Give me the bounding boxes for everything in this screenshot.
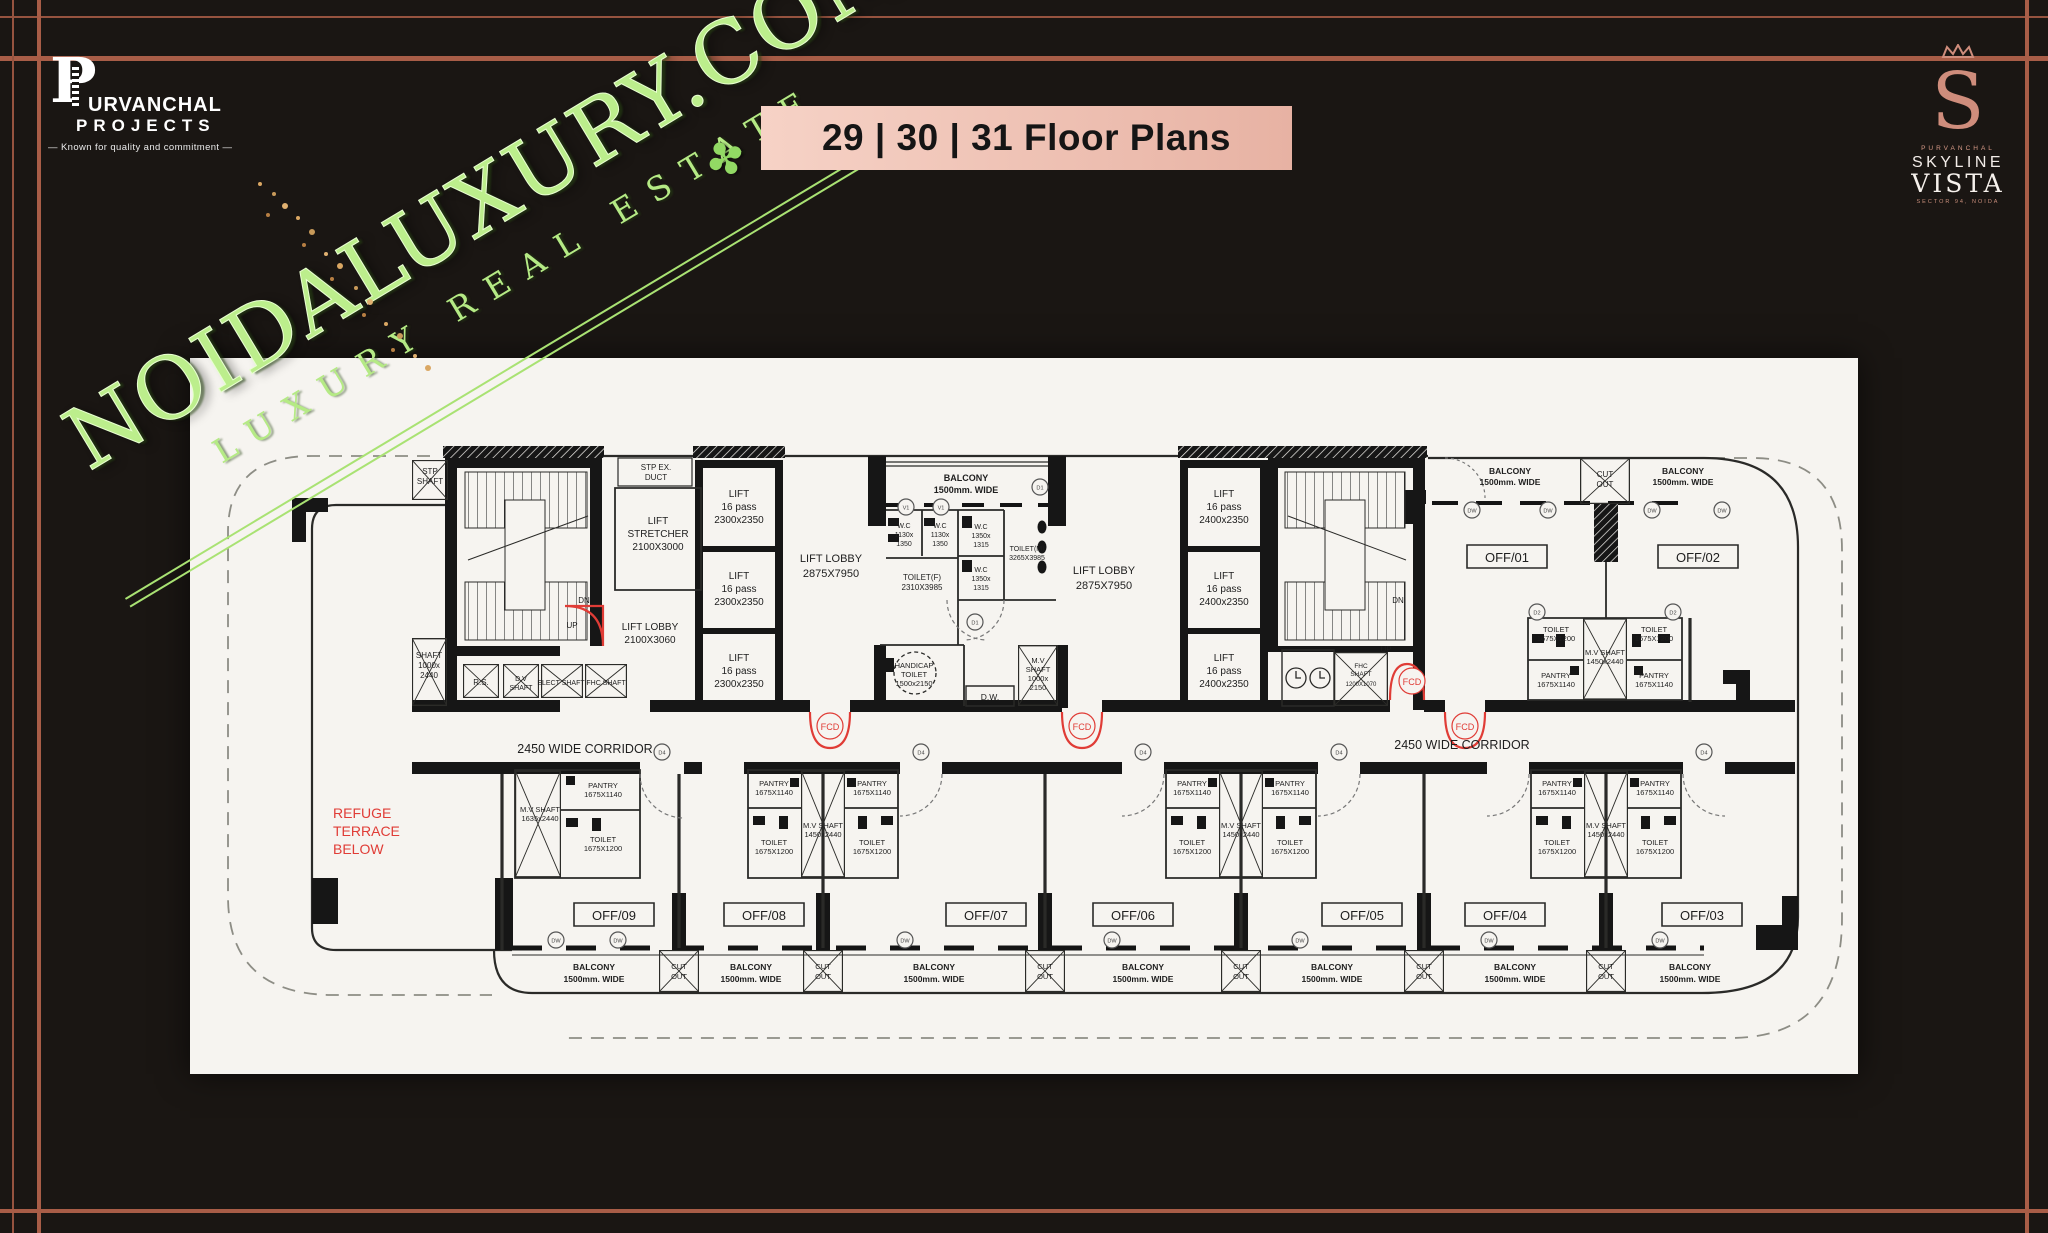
page-title-banner: 29 | 30 | 31 Floor Plans bbox=[761, 106, 1292, 170]
floor-plan-sheet bbox=[190, 358, 1858, 1074]
frame-line bbox=[2025, 0, 2029, 1233]
brand-tagline: — Known for quality and commitment — bbox=[48, 142, 232, 153]
floor-plan-poster: P URVANCHAL PROJECTS — Known for quality… bbox=[0, 0, 2048, 1233]
frame-line bbox=[12, 0, 14, 1233]
logo-line2: VISTA bbox=[1896, 172, 2020, 196]
clover-icon: ✤ bbox=[695, 126, 756, 192]
logo-brand-small: PURVANCHAL bbox=[1896, 145, 2020, 152]
frame-line bbox=[0, 56, 2048, 61]
building-icon bbox=[72, 64, 79, 108]
skyline-vista-logo: S PURVANCHAL SKYLINE VISTA SECTOR 94, NO… bbox=[1896, 44, 2020, 205]
gold-sparkles bbox=[258, 182, 262, 186]
monogram: S bbox=[1896, 63, 2020, 141]
frame-line bbox=[37, 0, 41, 1233]
frame-line bbox=[0, 16, 2048, 18]
page-title: 29 | 30 | 31 Floor Plans bbox=[822, 117, 1231, 159]
logo-tagline: SECTOR 94, NOIDA bbox=[1896, 199, 2020, 205]
frame-line bbox=[0, 1209, 2048, 1213]
brand-name: URVANCHAL bbox=[88, 94, 222, 117]
brand-name-2: PROJECTS bbox=[76, 116, 216, 136]
crown-icon bbox=[1941, 44, 1975, 58]
